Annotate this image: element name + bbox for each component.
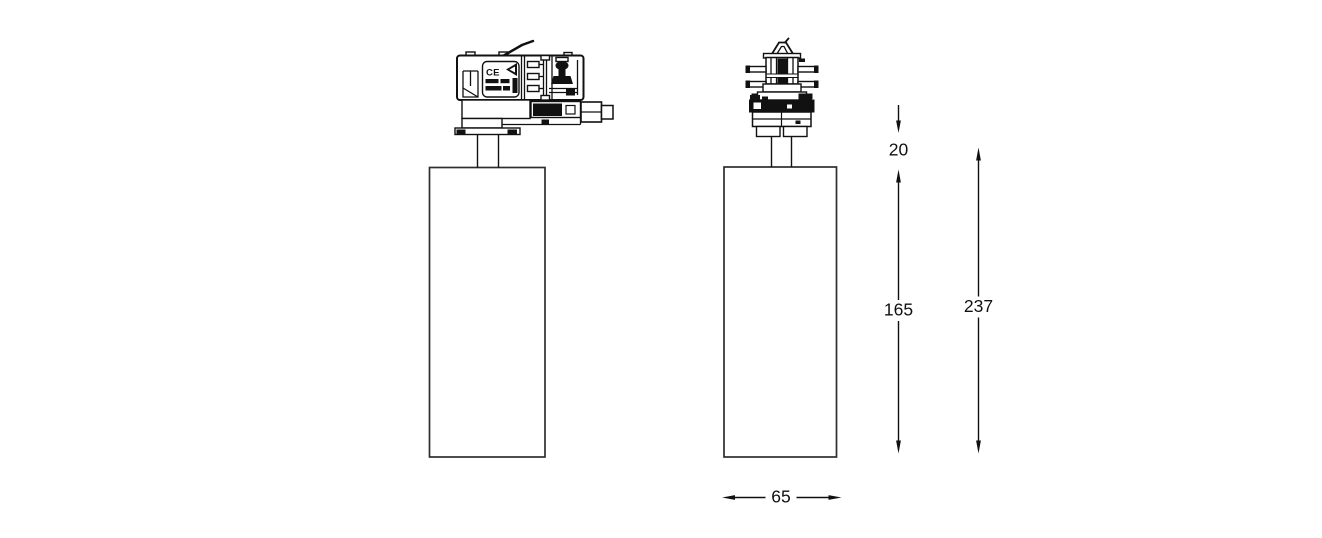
arrow-right-icon [829,495,842,500]
adapter-base-front [753,112,812,137]
side-view-track-adapter: CE [455,41,613,135]
arrow-down-icon [976,441,981,454]
side-view-luminaire-body [430,135,546,458]
front-view [724,39,837,458]
arrow-down-icon [896,441,901,454]
arrow-down-icon [896,121,901,134]
ce-mark-label: CE [486,68,500,79]
adapter-lock-lever [503,41,533,56]
arrow-left-icon [722,495,735,500]
adapter-contact-band [531,102,613,123]
technical-drawing: CE [0,0,1322,538]
dim-label-body-height: 165 [884,300,913,320]
dimension-total-height: 237 [960,148,997,454]
dim-label-total-height: 237 [964,296,993,316]
side-view: CE [430,41,614,457]
dimension-adapter-height: 20 [889,105,909,160]
arrow-up-icon [976,148,981,161]
front-view-track-adapter [746,39,819,137]
dim-label-body-width: 65 [771,487,790,507]
dimension-body-height: 165 [883,170,914,454]
dim-label-adapter-height: 20 [889,140,909,160]
dimension-body-width: 65 [722,487,842,507]
front-view-luminaire-body [724,137,837,458]
drawing-canvas: CE [0,0,1322,538]
adapter-rating-label: CE [483,62,520,98]
arrow-up-icon [896,170,901,183]
